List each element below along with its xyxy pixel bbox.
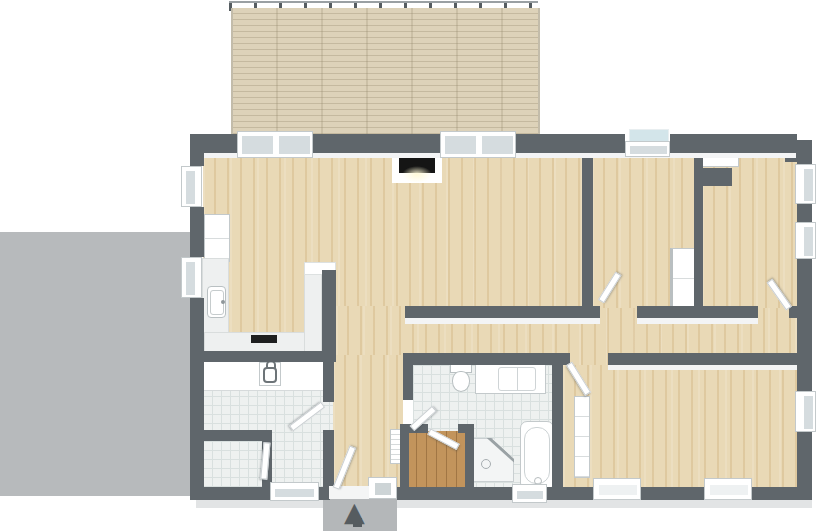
wall-east xyxy=(797,432,812,490)
wall-south xyxy=(641,487,704,500)
kitchen-counter-peninsula xyxy=(304,274,322,352)
wall-east xyxy=(797,148,812,164)
fireplace-glow xyxy=(402,166,432,183)
cooktop xyxy=(251,335,277,343)
window-west-1 xyxy=(181,166,202,207)
wall-bathroom-north xyxy=(403,353,570,365)
wall-sauna-east xyxy=(465,424,474,487)
wall-south xyxy=(547,487,593,500)
wall-face xyxy=(608,365,797,370)
wall-south xyxy=(752,487,812,500)
wall-face xyxy=(405,318,600,324)
window-entry-sidelight xyxy=(368,477,397,499)
window-master-2 xyxy=(704,478,752,500)
wall-sauna-west xyxy=(400,424,409,488)
wall-entry-west xyxy=(323,430,334,487)
wall-east xyxy=(797,259,812,391)
dresser-bedroom-northeast xyxy=(703,168,732,186)
wall-south xyxy=(397,487,512,500)
wall-hallway-north xyxy=(637,306,758,318)
double-vanity xyxy=(475,361,546,394)
window-wc xyxy=(270,482,319,501)
wall-north xyxy=(313,134,440,153)
window-east-1 xyxy=(795,164,816,204)
patio xyxy=(0,232,193,496)
wall-face xyxy=(637,318,758,324)
deck-floor xyxy=(231,8,540,134)
laundry-sink xyxy=(259,362,281,386)
wall-west xyxy=(190,298,204,500)
window-bedroom-center xyxy=(625,141,670,157)
wall-west xyxy=(190,134,204,166)
wall-entry-west xyxy=(323,355,334,402)
wall-bathroom-east xyxy=(552,355,563,487)
window-east-3 xyxy=(795,391,816,432)
entrance-arrow-icon: ▲ xyxy=(344,498,365,525)
window-master-1 xyxy=(593,478,641,500)
wall-livingroom-bedroom xyxy=(582,140,593,308)
wall-kitchen-laundry xyxy=(196,351,336,362)
wall-hallway-north xyxy=(789,306,798,318)
floor-master-bedroom xyxy=(563,365,797,487)
wall-hallway-south xyxy=(608,353,797,365)
window-bathroom xyxy=(512,484,547,503)
wall-south xyxy=(190,487,270,500)
wall-bedroom-divider xyxy=(694,140,703,308)
window-deck-door-east xyxy=(440,131,516,158)
kitchen-sink xyxy=(207,286,226,318)
floor-plan: ▲ xyxy=(0,0,817,531)
window-east-2 xyxy=(795,222,816,259)
wall-north xyxy=(670,134,797,153)
kitchen-tall-cabinets xyxy=(204,214,230,262)
wall-hallway-north xyxy=(405,306,600,318)
window-deck-door-west xyxy=(237,131,313,158)
wall-east xyxy=(797,204,812,222)
wardrobe-master-bedroom xyxy=(574,396,590,478)
toilet-bowl xyxy=(452,371,470,392)
window-west-2 xyxy=(181,257,202,298)
wall-laundry-wc xyxy=(196,430,272,441)
wall-north xyxy=(516,134,625,153)
wall-bathroom-west xyxy=(403,355,413,400)
wall-kitchen-peninsula xyxy=(322,270,336,362)
bathtub xyxy=(520,421,554,490)
wall-west xyxy=(190,207,204,257)
